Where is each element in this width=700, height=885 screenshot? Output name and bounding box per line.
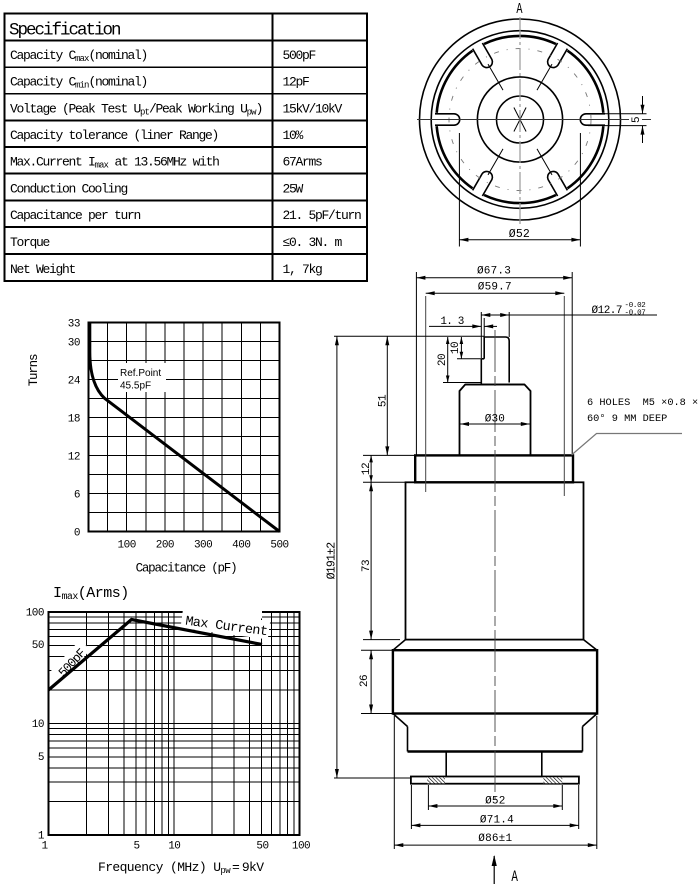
- svg-text:45.5pF: 45.5pF: [120, 381, 151, 392]
- svg-text:10%: 10%: [283, 128, 304, 143]
- svg-text:100: 100: [292, 841, 310, 853]
- svg-text:500pF: 500pF: [283, 48, 316, 63]
- svg-text:50: 50: [256, 841, 268, 853]
- svg-text:20: 20: [437, 354, 449, 366]
- svg-text:5: 5: [631, 116, 643, 123]
- svg-text:60° 9 MM DEEP: 60° 9 MM DEEP: [587, 413, 667, 425]
- svg-text:1. 3: 1. 3: [440, 316, 463, 328]
- svg-text:Frequency (MHz) Upw=9kV: Frequency (MHz) Upw=9kV: [98, 860, 264, 876]
- svg-text:500: 500: [270, 540, 288, 552]
- svg-text:24: 24: [68, 375, 81, 387]
- svg-text:Capacity tolerance (liner Rang: Capacity tolerance (liner Range): [10, 128, 218, 143]
- svg-text:Ø52: Ø52: [509, 228, 530, 241]
- svg-text:200: 200: [156, 540, 174, 552]
- svg-text:5: 5: [134, 841, 140, 853]
- svg-text:1: 1: [41, 841, 48, 853]
- svg-text:26: 26: [359, 675, 371, 687]
- svg-text:Ø67.3: Ø67.3: [477, 266, 511, 278]
- svg-text:0: 0: [74, 527, 80, 539]
- svg-text:Net Weight: Net Weight: [10, 262, 76, 277]
- svg-text:Max.Current Imax at 13.56MHz w: Max.Current Imax at 13.56MHz with: [10, 155, 219, 171]
- svg-text:21. 5pF/turn: 21. 5pF/turn: [283, 208, 362, 223]
- svg-text:Conduction Cooling: Conduction Cooling: [10, 181, 128, 196]
- svg-text:Ref.Point: Ref.Point: [120, 368, 161, 379]
- svg-text:Ø30: Ø30: [485, 414, 505, 426]
- svg-text:73: 73: [361, 560, 373, 572]
- svg-text:A: A: [516, 0, 522, 17]
- svg-text:Torque: Torque: [10, 235, 50, 250]
- svg-text:300: 300: [194, 540, 212, 552]
- svg-text:Capacitance per turn: Capacitance per turn: [10, 208, 141, 223]
- svg-text:100: 100: [26, 608, 44, 620]
- svg-text:18: 18: [68, 413, 80, 425]
- svg-text:1, 7kg: 1, 7kg: [283, 262, 323, 277]
- svg-text:Ø12.7: Ø12.7: [592, 305, 623, 317]
- svg-text:15kV/10kV: 15kV/10kV: [283, 101, 343, 116]
- svg-text:50: 50: [32, 640, 44, 652]
- svg-text:6 HOLES M5 ×0.8 ×: 6 HOLES M5 ×0.8 ×: [587, 397, 698, 409]
- svg-text:400: 400: [232, 540, 250, 552]
- svg-text:A: A: [511, 869, 518, 885]
- svg-text:12: 12: [361, 463, 373, 475]
- svg-text:12pF: 12pF: [283, 75, 310, 90]
- svg-text:25W: 25W: [283, 181, 304, 196]
- svg-text:Capacity Cmin(nominal): Capacity Cmin(nominal): [10, 75, 147, 91]
- svg-text:Capacitance (pF): Capacitance (pF): [136, 562, 237, 576]
- svg-text:Ø86±1: Ø86±1: [478, 833, 512, 845]
- svg-text:Voltage (Peak Test Upt/Peak Wo: Voltage (Peak Test Upt/Peak Working Upw): [10, 101, 262, 117]
- svg-text:Imax(Arms): Imax(Arms): [53, 585, 129, 603]
- svg-text:Turns: Turns: [27, 354, 41, 386]
- svg-text:30: 30: [68, 337, 80, 349]
- svg-text:51: 51: [378, 394, 390, 407]
- svg-text:10: 10: [32, 719, 44, 731]
- svg-text:67Arms: 67Arms: [283, 155, 323, 170]
- svg-text:Ø59.7: Ø59.7: [478, 282, 512, 294]
- svg-text:33: 33: [68, 318, 80, 330]
- svg-text:Ø71.4: Ø71.4: [480, 815, 514, 827]
- svg-text:Capacity Cmax(nominal): Capacity Cmax(nominal): [10, 48, 147, 64]
- svg-text:10: 10: [450, 342, 462, 354]
- svg-text:Ø52: Ø52: [485, 796, 505, 808]
- svg-text:12: 12: [68, 451, 80, 463]
- svg-text:100: 100: [118, 540, 136, 552]
- svg-text:≤0. 3N. m: ≤0. 3N. m: [283, 235, 343, 250]
- svg-text:6: 6: [74, 489, 80, 501]
- svg-text:-0.07: -0.07: [625, 309, 646, 317]
- svg-text:Specification: Specification: [9, 21, 120, 41]
- svg-text:Ø191±2: Ø191±2: [326, 542, 339, 580]
- svg-text:10: 10: [168, 841, 180, 853]
- svg-text:5: 5: [38, 752, 44, 764]
